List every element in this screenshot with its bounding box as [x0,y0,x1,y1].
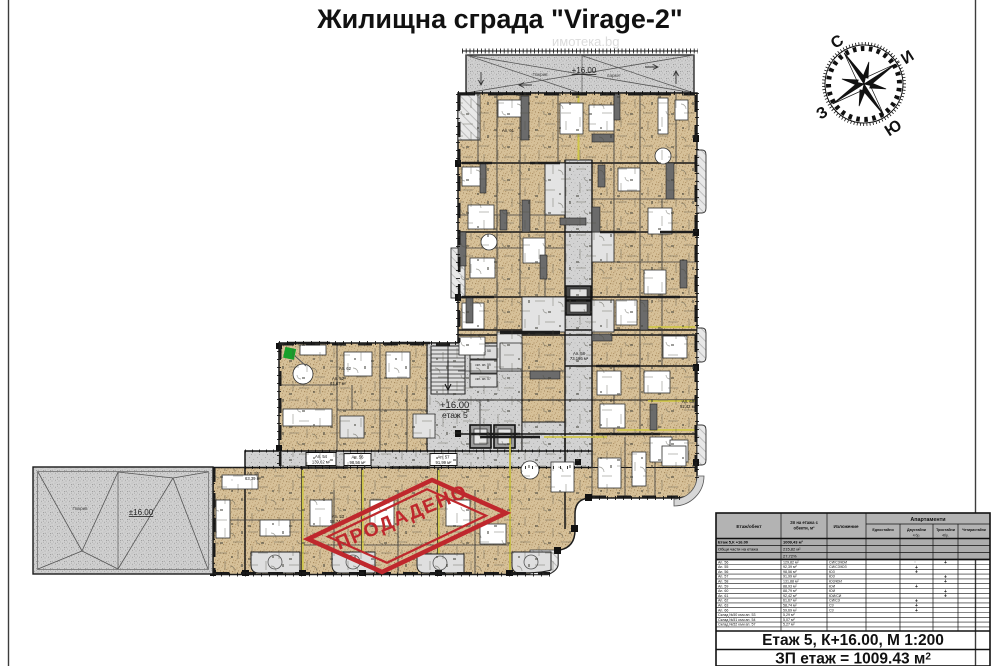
svg-text:ЮИ/СИ: ЮИ/СИ [829,594,842,598]
svg-text:58,74 м²: 58,74 м² [783,604,797,608]
svg-text:5,07 м²: 5,07 м² [783,618,795,622]
svg-text:27,72%: 27,72% [783,554,797,559]
svg-text:59,69 м²: 59,69 м² [783,608,797,612]
svg-text:4бр.: 4бр. [942,534,949,538]
svg-text:Покрив: Покрив [72,506,88,511]
svg-text:ЮИ: ЮИ [829,584,836,588]
svg-text:ЮЗ: ЮЗ [829,570,835,574]
svg-text:+16.00: +16.00 [572,66,597,75]
svg-text:Ап. 61: Ап. 61 [718,594,728,598]
svg-text:СЗ: СЗ [829,604,834,608]
svg-text:±16.00: ±16.00 [129,508,154,517]
svg-text:88,93 м²: 88,93 м² [783,584,797,588]
svg-text:обекти, м²: обекти, м² [793,526,815,531]
svg-text:Ап. 58: Ап. 58 [718,580,728,584]
svg-text:Склад №51 към ап. 54: Склад №51 към ап. 54 [718,618,755,622]
svg-text:131,88 м²: 131,88 м² [783,580,799,584]
svg-text:паркет: паркет [607,73,621,78]
svg-text:215,82 м²: 215,82 м² [783,547,801,552]
svg-text:Ап. 66: Ап. 66 [718,608,728,612]
svg-text:ЮЗ: ЮЗ [829,575,835,579]
svg-text:+: + [915,570,918,576]
svg-text:Едностайни: Едностайни [872,528,893,532]
svg-text:СИ/СЗ: СИ/СЗ [829,599,840,603]
svg-text:Етаж/обект: Етаж/обект [736,523,762,529]
svg-text:Склад №50 към ап. 53: Склад №50 към ап. 53 [718,613,755,617]
svg-text:5,29 м²: 5,29 м² [783,613,795,617]
svg-text:Ап. 56: Ап. 56 [718,570,728,574]
svg-text:СИ/СЗ/ЮЗ: СИ/СЗ/ЮЗ [829,565,847,569]
svg-text:+: + [944,579,947,585]
svg-text:Етаж 5,К +16.00: Етаж 5,К +16.00 [718,540,749,545]
svg-text:Тристайни: Тристайни [936,528,955,532]
svg-text:Склад №52 към ап. 57: Склад №52 към ап. 57 [718,623,755,627]
svg-text:98,56 м²: 98,56 м² [783,570,797,574]
svg-text:Жилищна сграда "Virage-2": Жилищна сграда "Virage-2" [316,4,682,34]
svg-text:ЮЗ/ЮИ: ЮЗ/ЮИ [829,580,842,584]
svg-text:Ап. 63: Ап. 63 [718,604,728,608]
svg-text:Апартаменти: Апартаменти [910,517,945,523]
svg-text:Изложение: Изложение [833,524,858,529]
svg-text:+: + [915,584,918,590]
svg-text:5,27 м²: 5,27 м² [783,623,795,627]
svg-text:СЗ: СЗ [829,608,834,612]
svg-text:ЮИ: ЮИ [829,589,836,593]
svg-text:Ап. 60: Ап. 60 [718,589,728,593]
svg-text:Ап. 59: Ап. 59 [718,584,728,588]
svg-text:Етаж 5, К+16.00, М 1:200: Етаж 5, К+16.00, М 1:200 [762,632,944,649]
svg-text:Двустайни: Двустайни [907,528,926,532]
svg-text:Ап. 57: Ап. 57 [718,575,728,579]
svg-text:61,67 м²: 61,67 м² [783,599,797,603]
svg-text:4 бр.: 4 бр. [913,534,921,538]
svg-text:92,39 м²: 92,39 м² [783,565,797,569]
svg-text:Общи части на етажа: Общи части на етажа [718,547,759,552]
svg-text:ЗП етаж = 1009.43 м2: ЗП етаж = 1009.43 м2 [775,651,931,666]
svg-text:имотека.bg: имотека.bg [552,34,619,49]
svg-text:91,99 м²: 91,99 м² [783,575,797,579]
svg-text:СИ/СЗ/ЮИ: СИ/СЗ/ЮИ [829,560,848,564]
svg-text:+: + [944,594,947,600]
svg-text:Покрив: Покрив [532,72,548,77]
svg-text:Четиристайни: Четиристайни [962,528,986,532]
svg-text:92,42 м²: 92,42 м² [783,594,797,598]
svg-text:Зп на етажа с: Зп на етажа с [790,520,819,525]
svg-text:Ап. 62: Ап. 62 [718,599,728,603]
svg-text:1009,43 м²: 1009,43 м² [783,540,804,545]
svg-text:129,82 м²: 129,82 м² [783,560,799,564]
svg-text:88,79 м²: 88,79 м² [783,589,797,593]
svg-text:+: + [944,560,947,566]
svg-text:Ап. 56: Ап. 56 [718,560,728,564]
svg-text:+: + [915,608,918,614]
svg-text:Ап. 55: Ап. 55 [718,565,728,569]
